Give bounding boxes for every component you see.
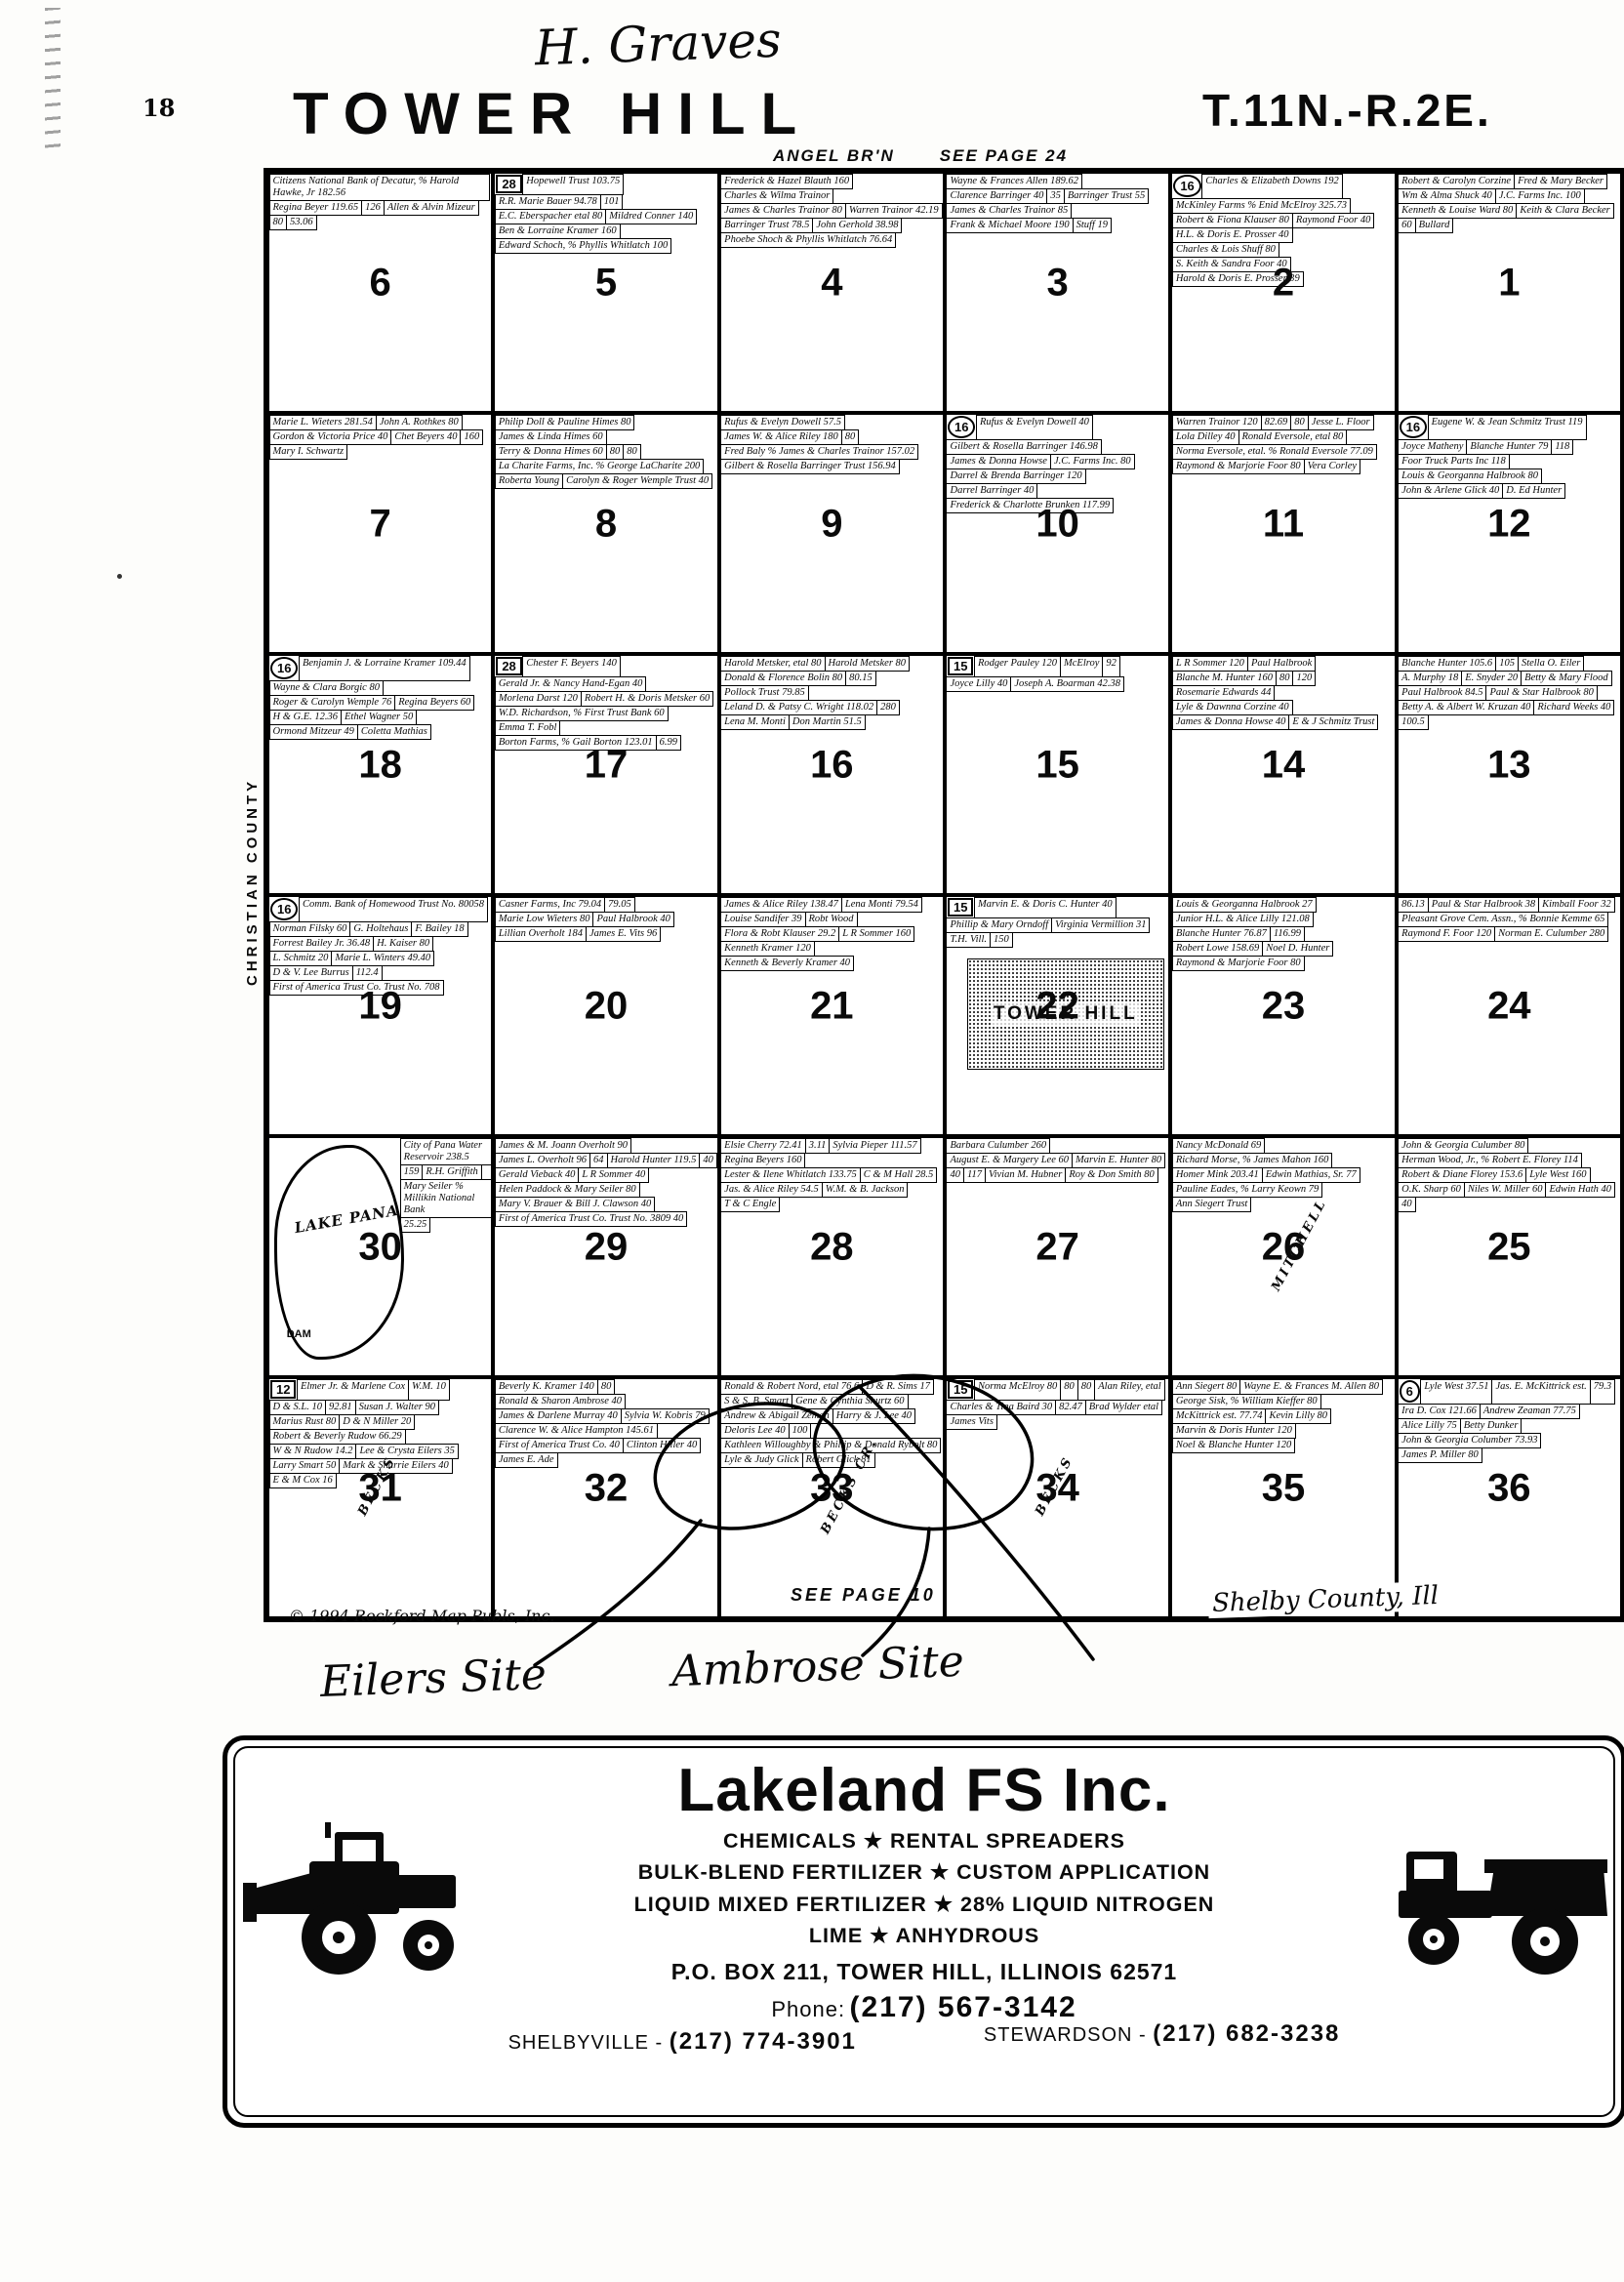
parcel: 40: [946, 1167, 964, 1183]
parcel: Coletta Mathias: [357, 724, 431, 740]
parcel: 80: [1060, 1379, 1078, 1401]
parcel: Charles & Lois Shuff 80: [1172, 242, 1279, 258]
parcel: Junior H.L. & Alice Lilly 121.08: [1172, 912, 1314, 927]
parcel: 112.4: [352, 965, 383, 981]
section-number: 36: [1487, 1466, 1531, 1510]
parcel: Eugene W. & Jean Schmitz Trust 119: [1428, 415, 1587, 440]
parcel: Niles W. Miller 60: [1464, 1182, 1547, 1198]
parcel: James E. Ade: [495, 1452, 558, 1468]
parcel: Noel D. Hunter: [1262, 941, 1333, 957]
road-marker-badge: 6: [1400, 1380, 1420, 1403]
parcel: Lyle & Judy Glick: [720, 1452, 802, 1468]
parcel: Robert H. & Doris Metsker 60: [581, 691, 713, 707]
parcel: Norma Eversole, etal. % Ronald Eversole …: [1172, 444, 1377, 460]
parcel: Chet Beyers 40: [390, 429, 461, 445]
parcel: Marie Low Wieters 80: [495, 912, 594, 927]
section-number: 27: [1035, 1225, 1079, 1269]
section-number: 26: [1262, 1225, 1306, 1269]
parcel: Kathleen Willoughby & Phillip & Donald R…: [720, 1438, 941, 1453]
eilers-site-annotation: Eilers Site: [319, 1650, 547, 1707]
parcel: Blanche Hunter 79: [1466, 439, 1552, 455]
parcel: Wayne E. & Frances M. Allen 80: [1239, 1379, 1383, 1395]
parcel: First of America Trust Co. Trust No. 708: [269, 980, 444, 996]
parcel: Virginia Vermillion 31: [1051, 917, 1150, 933]
section-cell-7: Marie L. Wieters 281.54John A. Rothkes 8…: [267, 413, 493, 654]
ad-phone-label: Phone:: [771, 1997, 845, 2021]
parcel: Ira D. Cox 121.66: [1398, 1404, 1481, 1419]
scan-artifact: [45, 8, 61, 154]
parcel: Blanche Hunter 76.87: [1172, 926, 1271, 942]
parcel: 80: [1077, 1379, 1096, 1401]
section-number: 6: [370, 261, 391, 305]
section-cell-20: Casner Farms, Inc 79.0479.05Marie Low Wi…: [493, 895, 718, 1136]
parcel: Stuff 19: [1073, 218, 1112, 233]
parcel: Benjamin J. & Lorraine Kramer 109.44: [299, 656, 470, 681]
town-area: TOWER HILL: [967, 958, 1164, 1070]
parcel: Terry & Donna Himes 60: [495, 444, 607, 460]
parcel: Noel & Blanche Hunter 120: [1172, 1438, 1295, 1453]
parcel: Raymond & Marjorie Foor 80: [1172, 956, 1305, 971]
parcel: Lester & Ilene Whitlatch 133.75: [720, 1167, 861, 1183]
parcel: Ronald Eversole, etal 80: [1238, 429, 1348, 445]
dam-label: DAM: [287, 1328, 311, 1340]
parcel: Vivian M. Hubner: [985, 1167, 1066, 1183]
ad-address: P.O. BOX 211, TOWER HILL, ILLINOIS 62571: [671, 1959, 1177, 1985]
parcel: Harold Hunter 119.5: [607, 1153, 701, 1168]
parcel: S & S. B. Smart: [720, 1394, 792, 1409]
parcel: Joyce Lilly 40: [946, 676, 1011, 692]
parcel: Lillian Overholt 184: [495, 926, 587, 942]
parcel: Clarence W. & Alice Hampton 145.61: [495, 1423, 658, 1439]
parcel: Rosemarie Edwards 44: [1172, 685, 1276, 701]
section-cell-3: Wayne & Frances Allen 189.62Clarence Bar…: [945, 172, 1170, 413]
parcel: McKinley Farms % Enid McElroy 325.73: [1172, 198, 1351, 214]
parcel: W.D. Richardson, % First Trust Bank 60: [495, 706, 669, 721]
parcel: Pleasant Grove Cem. Assn., % Bonnie Kemm…: [1398, 912, 1608, 927]
parcel: W.M. 10: [408, 1379, 450, 1401]
road-marker-badge: 15: [948, 898, 973, 917]
parcel: Raymond F. Foor 120: [1398, 926, 1495, 942]
section-cell-30: LAKE PANADAMCity of Pana Water Reservoir…: [267, 1136, 493, 1377]
parcel: Helen Paddock & Mary Seiler 80: [495, 1182, 640, 1198]
section-cell-1: Robert & Carolyn CorzineFred & Mary Beck…: [1397, 172, 1622, 413]
parcel: Clinton Hiller 40: [623, 1438, 701, 1453]
parcel: 80: [623, 444, 641, 460]
parcel: 100: [789, 1423, 812, 1439]
parcel: R.R. Marie Bauer 94.78: [495, 194, 601, 210]
parcel: L. Schmitz 20: [269, 951, 333, 966]
parcel: T & C Engle: [720, 1197, 780, 1212]
township-range-label: T.11N.-R.2E.: [1202, 84, 1492, 137]
parcel: Susan J. Walter 90: [355, 1400, 439, 1415]
parcel: 80: [1276, 671, 1294, 686]
parcel: 82.47: [1055, 1400, 1086, 1415]
ad-phone-number: (217) 567-3142: [850, 1991, 1077, 2023]
parcel: E.C. Eberspacher etal 80: [495, 209, 606, 224]
parcel: Norman Filsky 60: [269, 921, 351, 937]
section-number: 18: [358, 743, 402, 787]
parcel: Ann Siegert 80: [1172, 1379, 1240, 1395]
parcel: Ethel Wagner 50: [341, 710, 417, 725]
parcel: Marvin E. & Doris C. Hunter 40: [974, 897, 1116, 918]
section-cell-19: 16Comm. Bank of Homewood Trust No. 80058…: [267, 895, 493, 1136]
section-cell-13: Blanche Hunter 105.6105Stella O. EilerA.…: [1397, 654, 1622, 895]
parcel: John & Georgia Columber 73.93: [1398, 1433, 1541, 1448]
parcel: John & Georgia Culumber 80: [1398, 1138, 1528, 1154]
parcel: Marvin & Doris Hunter 120: [1172, 1423, 1296, 1439]
parcel: Louis & Georganna Halbrook 80: [1398, 469, 1542, 484]
section-cell-4: Frederick & Hazel Blauth 160Charles & Wi…: [719, 172, 945, 413]
section-number: 11: [1263, 502, 1304, 546]
parcel: W & N Rudow 14.2: [269, 1444, 357, 1459]
parcel: Robert Lowe 158.69: [1172, 941, 1263, 957]
parcel: 80.15: [845, 671, 876, 686]
road-marker-badge: 15: [948, 1380, 973, 1399]
parcel: Warren Trainor 42.19: [845, 203, 943, 219]
parcel: 80: [841, 429, 860, 445]
parcel: Regina Beyer 119.65: [269, 200, 363, 216]
parcel: Lyle & Dawnna Corzine 40: [1172, 700, 1293, 715]
parcel: Pollock Trust 79.85: [720, 685, 809, 701]
parcel: Edwin Hath 40: [1545, 1182, 1615, 1198]
parcel: Marvin E. Hunter 80: [1072, 1153, 1165, 1168]
parcel: Harold Metsker 80: [825, 656, 911, 672]
parcel: Phoebe Shoch & Phyllis Whitlatch 76.64: [720, 232, 896, 248]
section-number: 9: [821, 502, 842, 546]
parcel: Robt Wood: [805, 912, 858, 927]
ad-branch-stewardson: STEWARDSON - (217) 682-3238: [984, 2020, 1341, 2048]
parcel: T.H. Vill.: [946, 932, 991, 948]
section-number: 15: [1035, 743, 1079, 787]
parcel: 53.06: [286, 215, 317, 230]
parcel: Charles & Wilma Trainor: [720, 188, 833, 204]
parcel: Blanche M. Hunter 160: [1172, 671, 1277, 686]
parcel: 80: [1290, 415, 1309, 430]
parcel: Gilbert & Rosella Barringer Trust 156.94: [720, 459, 900, 474]
parcel: D & V. Lee Burrus: [269, 965, 353, 981]
section-number: 23: [1262, 984, 1306, 1028]
parcel: James & Charles Trainor 80: [720, 203, 846, 219]
parcel: H.L. & Doris E. Prosser 40: [1172, 227, 1293, 243]
parcel: Wm & Alma Shuck 40: [1398, 188, 1496, 204]
parcel: Marie L. Winters 49.40: [331, 951, 434, 966]
section-number: 3: [1047, 261, 1069, 305]
see-page-10-label: SEE PAGE 10: [785, 1585, 942, 1606]
parcel: Ronald & Sharon Ambrose 40: [495, 1394, 626, 1409]
parcel: Norma McElroy 80: [974, 1379, 1061, 1401]
parcel: Stella O. Eiler: [1518, 656, 1584, 672]
parcel: L R Sommer 40: [578, 1167, 649, 1183]
parcel: Marie L. Wieters 281.54: [269, 415, 377, 430]
parcel: D & R. Sims 17: [862, 1379, 934, 1395]
parcel: Flora & Robt Klauser 29.2: [720, 926, 839, 942]
parcel: F. Bailey 18: [411, 921, 467, 937]
parcel: Joseph A. Boarman 42.38: [1010, 676, 1124, 692]
parcel: Warren Trainor 120: [1172, 415, 1262, 430]
parcel: R.H. Griffith: [422, 1164, 481, 1180]
ad-service-line: LIQUID MIXED FERTILIZER ★ 28% LIQUID NIT…: [634, 1889, 1215, 1920]
section-cell-26: Nancy McDonald 69Richard Morse, % James …: [1170, 1136, 1396, 1377]
creek-label: MITCHELL: [1269, 1197, 1330, 1294]
parcel: Rodger Pauley 120: [974, 656, 1061, 677]
parcel: Kenneth Kramer 120: [720, 941, 815, 957]
section-number: 20: [585, 984, 629, 1028]
section-cell-25: John & Georgia Culumber 80Herman Wood, J…: [1397, 1136, 1622, 1377]
parcel: J.C. Farms Inc. 80: [1050, 454, 1135, 469]
parcel: Lyle West 160: [1525, 1167, 1590, 1183]
parcel: Harry & J. Lee 40: [832, 1408, 915, 1424]
parcel: Herman Wood, Jr., % Robert E. Florey 114: [1398, 1153, 1582, 1168]
section-number: 5: [595, 261, 617, 305]
ad-phone-row: Phone: (217) 567-3142: [771, 1991, 1076, 2024]
parcel: Alan Riley, etal: [1094, 1379, 1164, 1401]
parcel: D & S.L. 10: [269, 1400, 326, 1415]
road-marker-badge: 28: [496, 175, 521, 193]
parcel: Lola Dilley 40: [1172, 429, 1239, 445]
parcel: Harold Metsker, etal 80: [720, 656, 825, 672]
parcel: George Sisk, % William Kieffer 80: [1172, 1394, 1321, 1409]
parcel: Citizens National Bank of Decatur, % Har…: [269, 174, 490, 201]
section-cell-23: Louis & Georganna Halbrook 27Junior H.L.…: [1170, 895, 1396, 1136]
parcel: Paul & Star Halbrook 38: [1428, 897, 1539, 913]
parcel: 60: [1398, 218, 1416, 233]
parcel: August E. & Margery Lee 60: [946, 1153, 1073, 1168]
section-number: 35: [1262, 1466, 1306, 1510]
parcel: Wayne & Clara Borgic 80: [269, 680, 384, 696]
parcel: Mark & Sharrie Eilers 40: [339, 1458, 453, 1474]
section-cell-14: L R Sommer 120Paul HalbrookBlanche M. Hu…: [1170, 654, 1396, 895]
parcel: S. Keith & Sandra Foor 40: [1172, 257, 1291, 272]
parcel: 40: [699, 1153, 717, 1168]
section-number: 4: [821, 261, 842, 305]
parcel: Phillip & Mary Orndoff: [946, 917, 1052, 933]
parcel: Vera Corley: [1304, 459, 1360, 474]
parcel: Kevin Lilly 80: [1265, 1408, 1331, 1424]
advertisement: Lakeland FS Inc. CHEMICALS ★ RENTAL SPRE…: [223, 1735, 1624, 2128]
parcel: Gilbert & Rosella Barringer 146.98: [946, 439, 1101, 455]
section-cell-35: Ann Siegert 80Wayne E. & Frances M. Alle…: [1170, 1377, 1396, 1618]
parcel: Pauline Eades, % Larry Keown 79: [1172, 1182, 1322, 1198]
road-marker-badge: 16: [270, 898, 298, 920]
parcel: Edward Schoch, % Phyllis Whitlatch 100: [495, 238, 671, 254]
section-number: 29: [585, 1225, 629, 1269]
lake-label: LAKE PANA: [294, 1202, 401, 1237]
creek-label: BECKS: [1033, 1453, 1076, 1518]
section-cell-28: Elsie Cherry 72.413.11Sylvia Pieper 111.…: [719, 1136, 945, 1377]
parcel: Blanche Hunter 105.6: [1398, 656, 1496, 672]
parcel: E. Snyder 20: [1461, 671, 1522, 686]
section-cell-6: Citizens National Bank of Decatur, % Har…: [267, 172, 493, 413]
section-cell-17: 28Chester F. Beyers 140Gerald Jr. & Nanc…: [493, 654, 718, 895]
parcel: Charles & Tina Baird 30: [946, 1400, 1056, 1415]
section-cell-12: 16Eugene W. & Jean Schmitz Trust 119Joyc…: [1397, 413, 1622, 654]
section-cell-24: 86.13Paul & Star Halbrook 38Kimball Foor…: [1397, 895, 1622, 1136]
parcel: Borton Farms, % Gail Borton 123.01: [495, 735, 657, 751]
parcel: G. Holtehaus: [349, 921, 412, 937]
section-cell-32: Beverly K. Kramer 14080Ronald & Sharon A…: [493, 1377, 718, 1618]
section-number: 28: [810, 1225, 854, 1269]
parcel: Louise Sandifer 39: [720, 912, 805, 927]
parcel: Norman E. Culumber 280: [1494, 926, 1608, 942]
ad-company-name: Lakeland FS Inc.: [677, 1756, 1170, 1825]
parcel: First of America Trust Co. 40: [495, 1438, 624, 1453]
section-cell-33: Ronald & Robert Nord, etal 76.6D & R. Si…: [719, 1377, 945, 1618]
parcel: Richard Weeks 40: [1533, 700, 1614, 715]
ambrose-site-annotation: Ambrose Site: [670, 1637, 964, 1696]
parcel: 80: [597, 1379, 616, 1395]
parcel: C & M Hall 28.5: [860, 1167, 937, 1183]
section-cell-34: 15Norma McElroy 808080Alan Riley, etalCh…: [945, 1377, 1170, 1618]
parcel: Keith & Clara Becker: [1516, 203, 1613, 219]
parcel: 101: [600, 194, 624, 210]
section-number: 14: [1262, 743, 1306, 787]
parcel: 80: [606, 444, 625, 460]
stream-label: ANGEL BR'N: [773, 146, 895, 165]
parcel: Edwin Mathias, Sr. 77: [1262, 1167, 1360, 1183]
section-cell-16: Harold Metsker, etal 80Harold Metsker 80…: [719, 654, 945, 895]
parcel: Wayne & Frances Allen 189.62: [946, 174, 1082, 189]
section-number: 7: [370, 502, 391, 546]
parcel: Robert Glick 81: [802, 1452, 875, 1468]
parcel: Robert & Diane Florey 153.6: [1398, 1167, 1526, 1183]
parcel: J.C. Farms Inc. 100: [1495, 188, 1585, 204]
scan-artifact-dot: [117, 574, 122, 579]
section-cell-9: Rufus & Evelyn Dowell 57.5James W. & Ali…: [719, 413, 945, 654]
parcel: McElroy: [1060, 656, 1103, 677]
tractor-spreader-illustration: [241, 1814, 470, 1985]
section-number: 13: [1487, 743, 1531, 787]
parcel: Betty Dunker: [1460, 1418, 1522, 1434]
section-cell-27: Barbara Culumber 260August E. & Margery …: [945, 1136, 1170, 1377]
parcel: H. Kaiser 80: [373, 936, 433, 952]
parcel: Foor Truck Parts Inc 118: [1398, 454, 1510, 469]
section-number: 34: [1035, 1466, 1079, 1510]
parcel: Barringer Trust 78.5: [720, 218, 813, 233]
parcel: Darrel & Brenda Barringer 120: [946, 469, 1085, 484]
parcel: First of America Trust Co. Trust No. 380…: [495, 1211, 687, 1227]
parcel: Lena M. Monti: [720, 714, 790, 730]
page-title: TOWER HILL: [293, 80, 812, 147]
section-number: 33: [810, 1466, 854, 1510]
parcel: City of Pana Water Reservoir 238.5: [400, 1138, 492, 1165]
parcel: Rufus & Evelyn Dowell 57.5: [720, 415, 845, 430]
parcel: 116.99: [1270, 926, 1305, 942]
parcel: Sylvia Pieper 111.57: [829, 1138, 920, 1154]
parcel: Frederick & Hazel Blauth 160: [720, 174, 853, 189]
parcel: Roger & Carolyn Wemple 76: [269, 695, 396, 711]
parcel: Raymond & Marjorie Foor 80: [1172, 459, 1305, 474]
section-number: 32: [585, 1466, 629, 1510]
parcel: 100.5: [1398, 714, 1429, 730]
ad-service-line: LIME ★ ANHYDROUS: [809, 1920, 1039, 1951]
handwritten-name: H. Graves: [534, 12, 782, 77]
parcel: 80: [269, 215, 288, 230]
parcel: 79.3: [1590, 1379, 1615, 1405]
parcel: Donald & Florence Bolin 80: [720, 671, 846, 686]
section-cell-2: 16Charles & Elizabeth Downs 192McKinley …: [1170, 172, 1396, 413]
section-number: 21: [810, 984, 854, 1028]
section-cell-15: 15Rodger Pauley 120McElroy92Joyce Lilly …: [945, 654, 1170, 895]
see-page-24-label: SEE PAGE 24: [940, 146, 1068, 165]
parcel: James & Darlene Murray 40: [495, 1408, 622, 1424]
road-marker-badge: 16: [1400, 416, 1427, 438]
parcel: Chester F. Beyers 140: [522, 656, 621, 677]
parcel: 159: [400, 1164, 424, 1180]
parcel: Ronald & Robert Nord, etal 76.6: [720, 1379, 863, 1395]
parcel: Allen & Alvin Mizeur: [384, 200, 479, 216]
parcel: L R Sommer 160: [838, 926, 914, 942]
spreader-truck-illustration: [1377, 1809, 1611, 1984]
ad-branch-shelbyville: SHELBYVILLE - (217) 774-3901: [508, 2028, 857, 2056]
parcel: W.M. & B. Jackson: [822, 1182, 909, 1198]
plat-map: Citizens National Bank of Decatur, % Har…: [264, 168, 1624, 1622]
parcel: E & M Cox 16: [269, 1473, 337, 1488]
parcel: 160: [460, 429, 483, 445]
parcel: 150: [990, 932, 1013, 948]
section-cell-8: Philip Doll & Pauline Himes 80James & Li…: [493, 413, 718, 654]
parcel: Gene & Cynthia Shurtz 60: [792, 1394, 908, 1409]
parcel: 25.25: [400, 1217, 431, 1233]
parcel: Deloris Lee 40: [720, 1423, 789, 1439]
parcel: Sylvia W. Kobris 79: [621, 1408, 710, 1424]
parcel: 82.69: [1261, 415, 1292, 430]
section-cell-29: James & M. Joann Overholt 90James L. Ove…: [493, 1136, 718, 1377]
road-marker-badge: 28: [496, 657, 521, 675]
parcel: D. Ed Hunter: [1502, 483, 1565, 499]
section-number: 25: [1487, 1225, 1531, 1269]
plat-grid: Citizens National Bank of Decatur, % Har…: [267, 172, 1622, 1618]
parcel: A. Murphy 18: [1398, 671, 1462, 686]
parcel: Kenneth & Louise Ward 80: [1398, 203, 1517, 219]
section-number: 8: [595, 502, 617, 546]
parcel: John & Arlene Glick 40: [1398, 483, 1503, 499]
parcel: Darrel Barringer 40: [946, 483, 1037, 499]
parcel: James L. Overholt 96: [495, 1153, 590, 1168]
parcel: 86.13: [1398, 897, 1429, 913]
parcel: Mary Seiler % Millikin National Bank: [400, 1179, 492, 1218]
parcel: E & J Schmitz Trust: [1288, 714, 1378, 730]
lake-shape: LAKE PANADAM: [274, 1145, 404, 1360]
parcel: Lee & Crysta Eilers 35: [355, 1444, 458, 1459]
parcel: James & Linda Himes 60: [495, 429, 607, 445]
parcel: Casner Farms, Inc 79.04: [495, 897, 605, 913]
parcel: 40: [1398, 1197, 1416, 1212]
parcel: Lyle West 37.51: [1420, 1379, 1492, 1405]
parcel: Andrew Zeaman 77.75: [1480, 1404, 1580, 1419]
section-number: 1: [1498, 261, 1520, 305]
parcel: John Gerhold 38.98: [812, 218, 902, 233]
parcel: Ann Siegert Trust: [1172, 1197, 1252, 1212]
parcel: 120: [1292, 671, 1316, 686]
parcel: Don Martin 51.5: [789, 714, 866, 730]
parcel: Rufus & Evelyn Dowell 40: [976, 415, 1093, 440]
parcel: Kenneth & Beverly Kramer 40: [720, 956, 854, 971]
parcel: Robert & Beverly Rudow 66.29: [269, 1429, 406, 1445]
parcel: Lena Monti 79.54: [841, 897, 922, 913]
section-cell-21: James & Alice Riley 138.47Lena Monti 79.…: [719, 895, 945, 1136]
parcel: James & Charles Trainor 85: [946, 203, 1072, 219]
parcel: 92.81: [325, 1400, 356, 1415]
parcel: Forrest Bailey Jr. 36.48: [269, 936, 375, 952]
parcel: Ben & Lorraine Kramer 160: [495, 224, 621, 239]
parcel: Paul & Star Halbrook 80: [1485, 685, 1597, 701]
parcel: Regina Beyers 160: [720, 1153, 805, 1168]
parcel: Gerald Vieback 40: [495, 1167, 580, 1183]
parcel: Homer Mink 203.41: [1172, 1167, 1263, 1183]
parcel: Comm. Bank of Homewood Trust No. 80058: [299, 897, 488, 922]
section-number: 24: [1487, 984, 1531, 1028]
section-cell-10: 16Rufus & Evelyn Dowell 40Gilbert & Rose…: [945, 413, 1170, 654]
